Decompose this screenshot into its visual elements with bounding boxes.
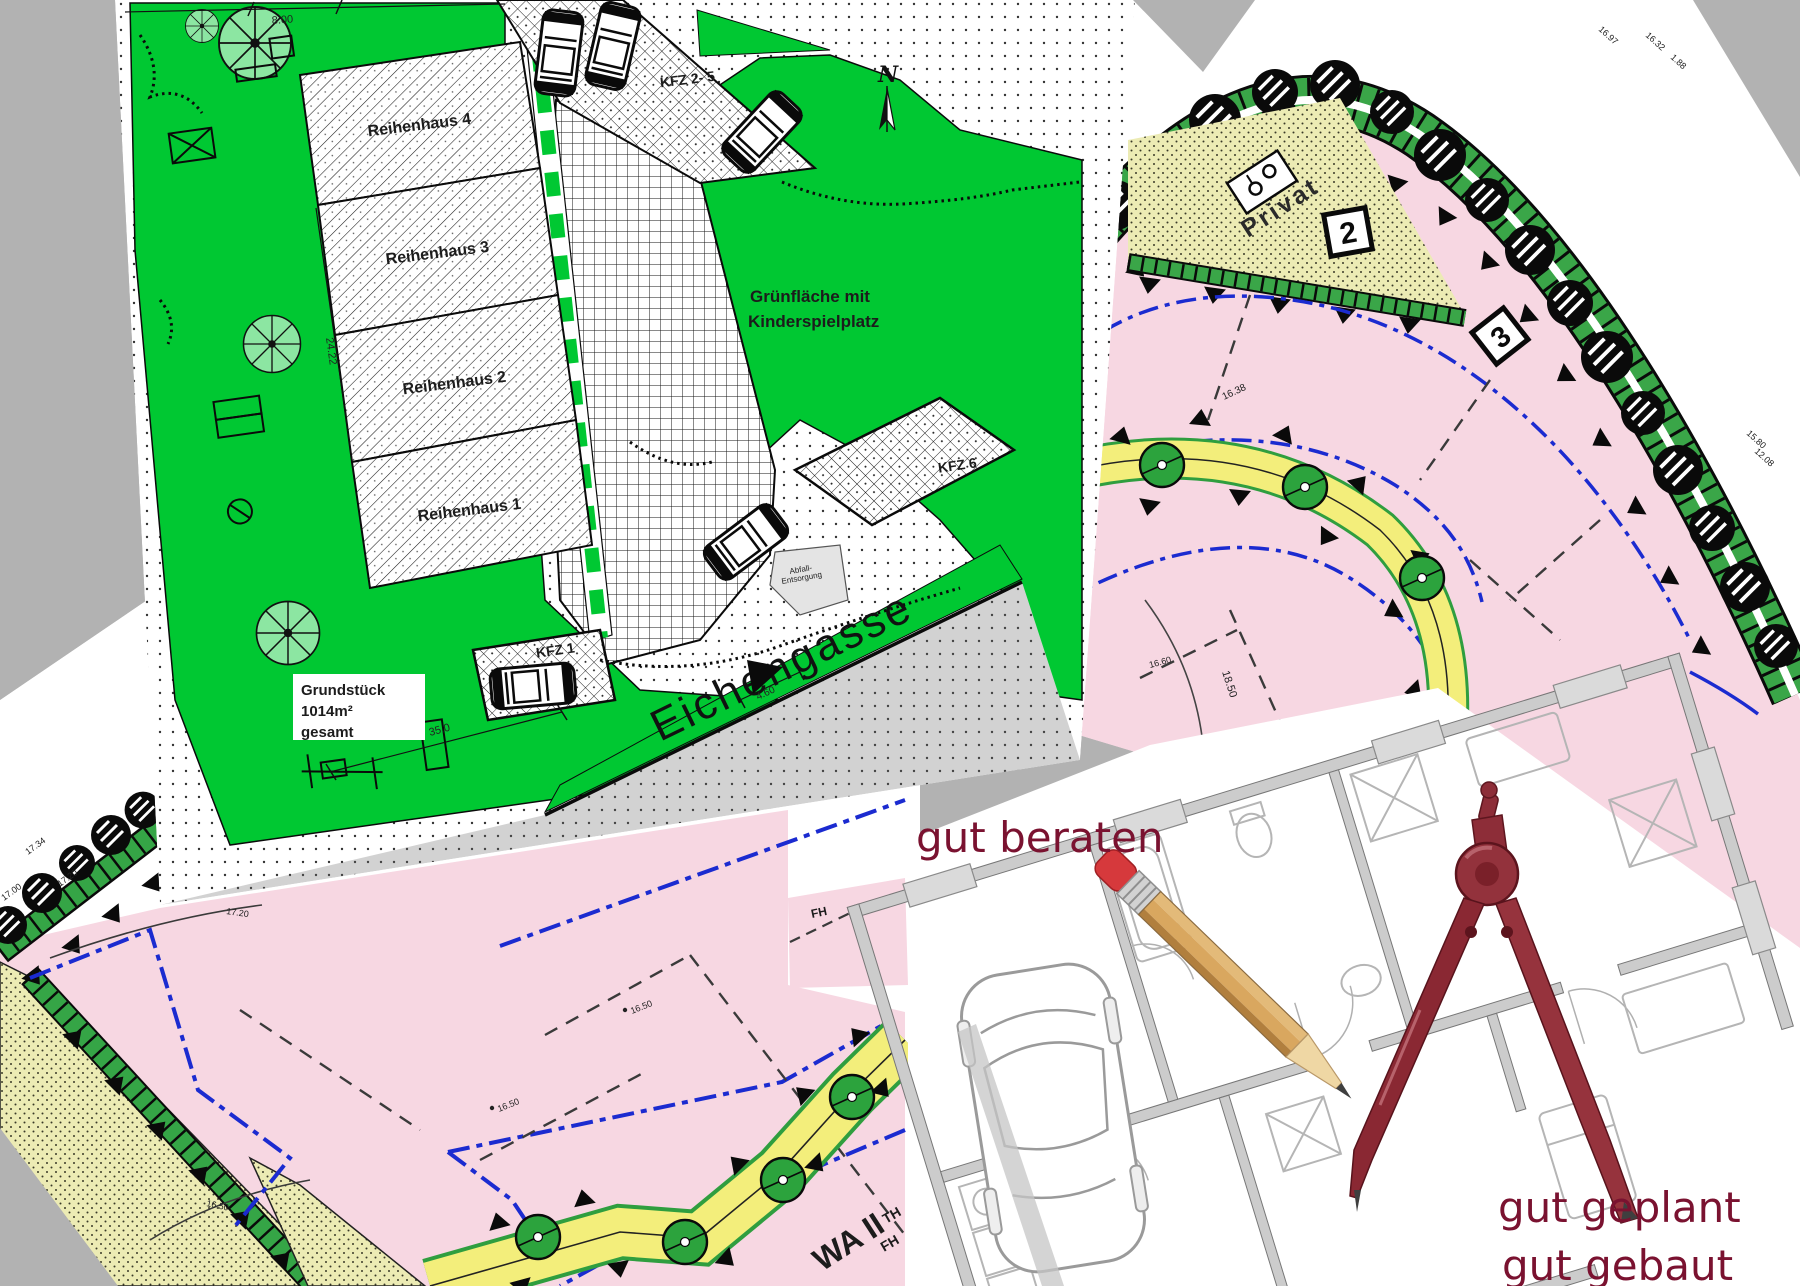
gruenflaeche-label-2: Kinderspielplatz [748,312,879,331]
plot-info-line2: 1014m² [301,703,353,720]
dim-top: 8.00 [271,14,293,27]
gruenflaeche-label-1: Grünfläche mit [750,287,870,306]
north-label: N [877,62,899,88]
architect-plan-collage: FH 17.34 17.00 17.20 17.20 16.50 [0,0,1800,1286]
site-plan: Reihenhaus 4 Reihenhaus 3 Reihenhaus 2 R… [115,0,1135,905]
collage-svg: FH 17.34 17.00 17.20 17.20 16.50 [0,0,1800,1286]
plot-info-line3: gesamt [301,724,354,741]
slogan-line-1: gut beraten [916,813,1164,862]
slogan-line-2: gut geplant [1498,1183,1741,1232]
slogan-line-3: gut gebaut [1502,1241,1733,1286]
plot-info-box: Grundstück 1014m² gesamt [293,674,425,741]
marker-2: 2 [1324,208,1373,257]
plot-info-line1: Grundstück [301,682,386,699]
